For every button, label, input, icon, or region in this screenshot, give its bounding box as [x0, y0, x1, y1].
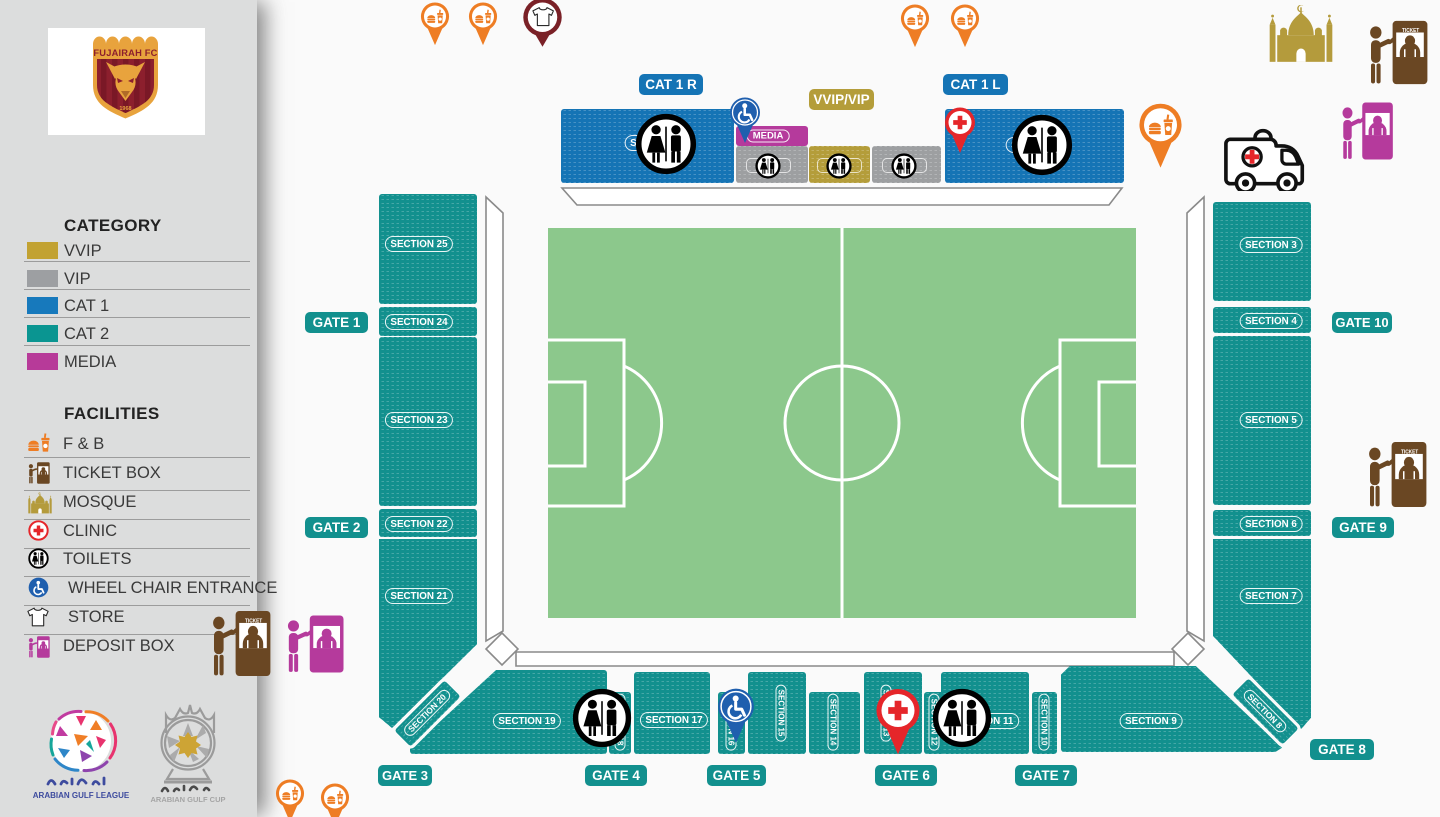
svg-text:ARABIAN GULF CUP: ARABIAN GULF CUP [151, 795, 226, 803]
svg-text:FUJAIRAH FC: FUJAIRAH FC [93, 48, 157, 58]
svg-text:1968: 1968 [119, 106, 131, 112]
svg-text:TICKET: TICKET [1402, 28, 1419, 34]
svg-text:TICKET: TICKET [245, 618, 263, 624]
svg-text:ARABIAN GULF LEAGUE: ARABIAN GULF LEAGUE [33, 791, 130, 800]
svg-text:TICKET: TICKET [1401, 449, 1419, 455]
